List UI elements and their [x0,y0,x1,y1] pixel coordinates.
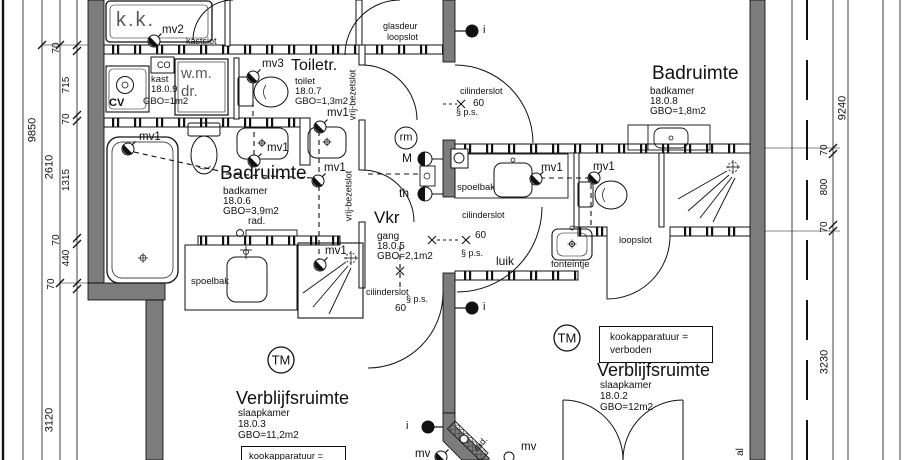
mv1-fan-icon [314,258,328,272]
i-point-icon [422,421,444,434]
toiletr-title: Toiletr. [291,58,337,74]
door-toiletruimte [362,65,417,120]
i-point-icon [455,302,479,315]
toilet-fixture-right [578,181,627,209]
slaapkamer2-title: Verblijfsruimte [597,361,710,379]
i-label: i [483,25,485,36]
wm-label: w.m. [181,66,212,81]
dim-70: 70 [62,113,72,124]
glasdeur-label: glasdeur [383,22,418,31]
mv-fan-icon [435,450,449,460]
mv3-fan-icon [247,70,261,84]
door-width-label: 60 [475,231,486,241]
i-point-icon [455,25,479,38]
dim-440: 440 [62,250,72,267]
cilinderslot-label: cilinderslot [366,288,409,297]
rm-label: rm [400,133,413,144]
mv-fan-icon [504,452,514,460]
cilinderslot-label: cilinderslot [462,211,505,220]
dim-total-left: 9850 [28,118,39,142]
slaapkamer2-type: slaapkamer [600,381,652,391]
kookapparatuur-line1: kookapparatuur = [610,333,688,343]
ps-label: § p.s. [461,249,483,258]
badruimte8-area: GBO=1,8m2 [650,107,706,117]
dim-70: 70 [47,278,57,289]
m-label: M [402,152,412,164]
mv3-label: mv3 [262,59,284,71]
door-width-label: 60 [395,304,406,314]
slaapkamer3-title: Verblijfsruimte [236,389,349,407]
mv1-label: mv1 [324,163,346,175]
dim-3230: 3230 [820,350,831,374]
spoelbak-label: spoelbak [457,183,495,193]
m-meter-icon [418,152,443,166]
slaapkamer3-area: GBO=11,2m2 [238,431,299,441]
i-label: i [483,302,485,313]
kk-label: k.k. [116,10,155,30]
co-label: CO [157,61,171,70]
slaapkamer3-number: 18.0.3 [238,420,266,430]
ps-label: § p.s. [456,108,478,117]
dim-800: 800 [820,179,830,196]
dim-total-right: 9240 [838,96,849,120]
th-meter-icon [418,187,443,201]
mv1-label: mv1 [541,163,563,175]
tm-label: TM [272,354,291,367]
dim-70: 70 [52,42,62,53]
mv2-label: mv2 [162,25,184,37]
shower-right [678,160,740,222]
th-label: th [399,187,409,199]
fonteintje-label: fonteintje [551,260,590,270]
mv-label: mv [415,449,430,460]
vkr-title: Vkr [374,209,400,226]
floorplan-canvas: k.k. mv2 kastslot CO kast 18.0.9 GBO=1m2… [0,0,905,460]
mv1-label: mv1 [327,108,349,120]
door-entree-rechts [455,65,533,143]
badruimte6-title: Badruimte [220,164,307,183]
tm-label: TM [558,332,577,345]
slaapkamer3-type: slaapkamer [238,409,290,419]
dim-3120: 3120 [45,408,56,432]
radiator-badruimte6 [237,230,298,237]
dr-label: dr. [181,84,198,99]
meter-box [420,166,435,186]
cv-label: CV [109,98,124,109]
toilet-fixture-toiletruimte [238,77,288,107]
i-label: i [406,421,408,432]
dim-2610: 2610 [45,155,56,179]
ps-label: § p.s. [406,295,428,304]
dim-715: 715 [62,77,72,94]
floorplan-linework [0,0,905,460]
dim-1315: 1315 [62,169,72,191]
kast-number: 18.0.9 [151,85,177,95]
mv1-label: mv1 [267,143,289,155]
loopslot-label: loopslot [619,236,652,246]
dim-70: 70 [820,144,830,155]
vrij-bezetslot-label: vrij-bezetslot [345,171,354,222]
cilinderslot-label: cilinderslot [460,87,503,96]
vkr-area: GBO=2,1m2 [377,252,433,262]
rad-label: rad. [248,217,265,227]
slaapkamer2-area: GBO=12m2 [600,403,653,413]
mv1-label: mv1 [325,246,347,258]
badruimte8-title: Badruimte [652,64,739,83]
kookapparatuur-line2: verboden [610,346,652,356]
washbasin-right [308,127,346,158]
bathtub [107,137,178,283]
mv1-label: mv1 [139,132,161,144]
dim-70: 70 [52,234,62,245]
spoelbak-label: spoelbak [191,277,229,287]
toiletr-area: GBO=1,3m2 [295,97,348,107]
dim-70: 70 [820,221,830,232]
mv1-label: mv1 [593,162,615,174]
al-label: al [736,448,746,456]
kastslot-label: kastslot [186,37,217,46]
kookapparatuur-line1: kookapparatuur = [249,452,323,460]
glasdeur-loopslot-label: loopslot [387,33,418,42]
slaapkamer2-number: 18.0.2 [600,392,628,402]
mv-label: mv [521,442,536,454]
toilet-fixture-badruimte6 [188,123,220,174]
dimension-lines-right [765,0,900,460]
mv1-fan-icon [312,174,326,188]
luik-label: luik [496,255,514,267]
vrij-bezetslot-label: vrij-bezetslot [349,70,358,121]
mv1-fan-icon [122,142,136,156]
mv1-fan-icon [314,120,328,134]
